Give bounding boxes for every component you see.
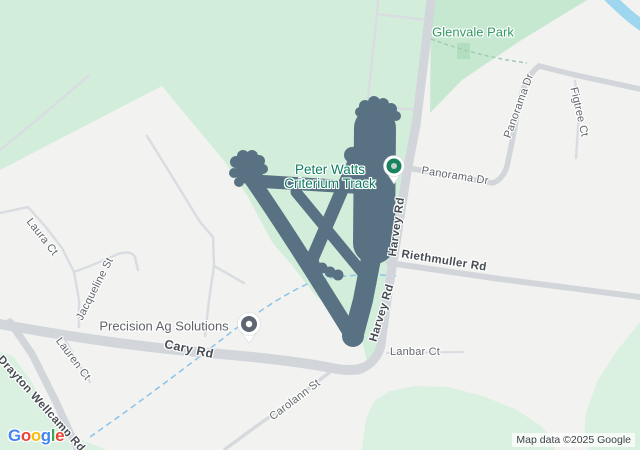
poi-label-peter-watts-criterium-track[interactable]: Peter Watts Criterium Track <box>284 163 376 191</box>
poi-label-precision-ag-solutions[interactable]: Precision Ag Solutions <box>99 319 228 334</box>
poi-label-line1: Peter Watts <box>284 163 376 177</box>
google-logo[interactable]: Google <box>8 426 64 446</box>
google-logo-letter: g <box>41 426 51 445</box>
map-attribution: Map data ©2025 Google <box>512 433 635 447</box>
river <box>607 0 640 31</box>
google-logo-letter: G <box>8 426 21 445</box>
park-label-glenvale-park[interactable]: Glenvale Park <box>432 25 514 40</box>
poi-label-line2: Criterium Track <box>284 177 376 191</box>
road-riethmuller-rd <box>389 263 640 297</box>
google-logo-letter: o <box>21 426 31 445</box>
google-logo-letter: e <box>55 426 64 445</box>
poi-pin-precision-ag-solutions[interactable] <box>238 313 261 344</box>
road-label-lanbar-ct: Lanbar Ct <box>390 346 440 358</box>
map-canvas[interactable]: Glenvale Park Panorama Dr Panorama Dr Fi… <box>0 0 640 450</box>
google-logo-letter: o <box>31 426 41 445</box>
